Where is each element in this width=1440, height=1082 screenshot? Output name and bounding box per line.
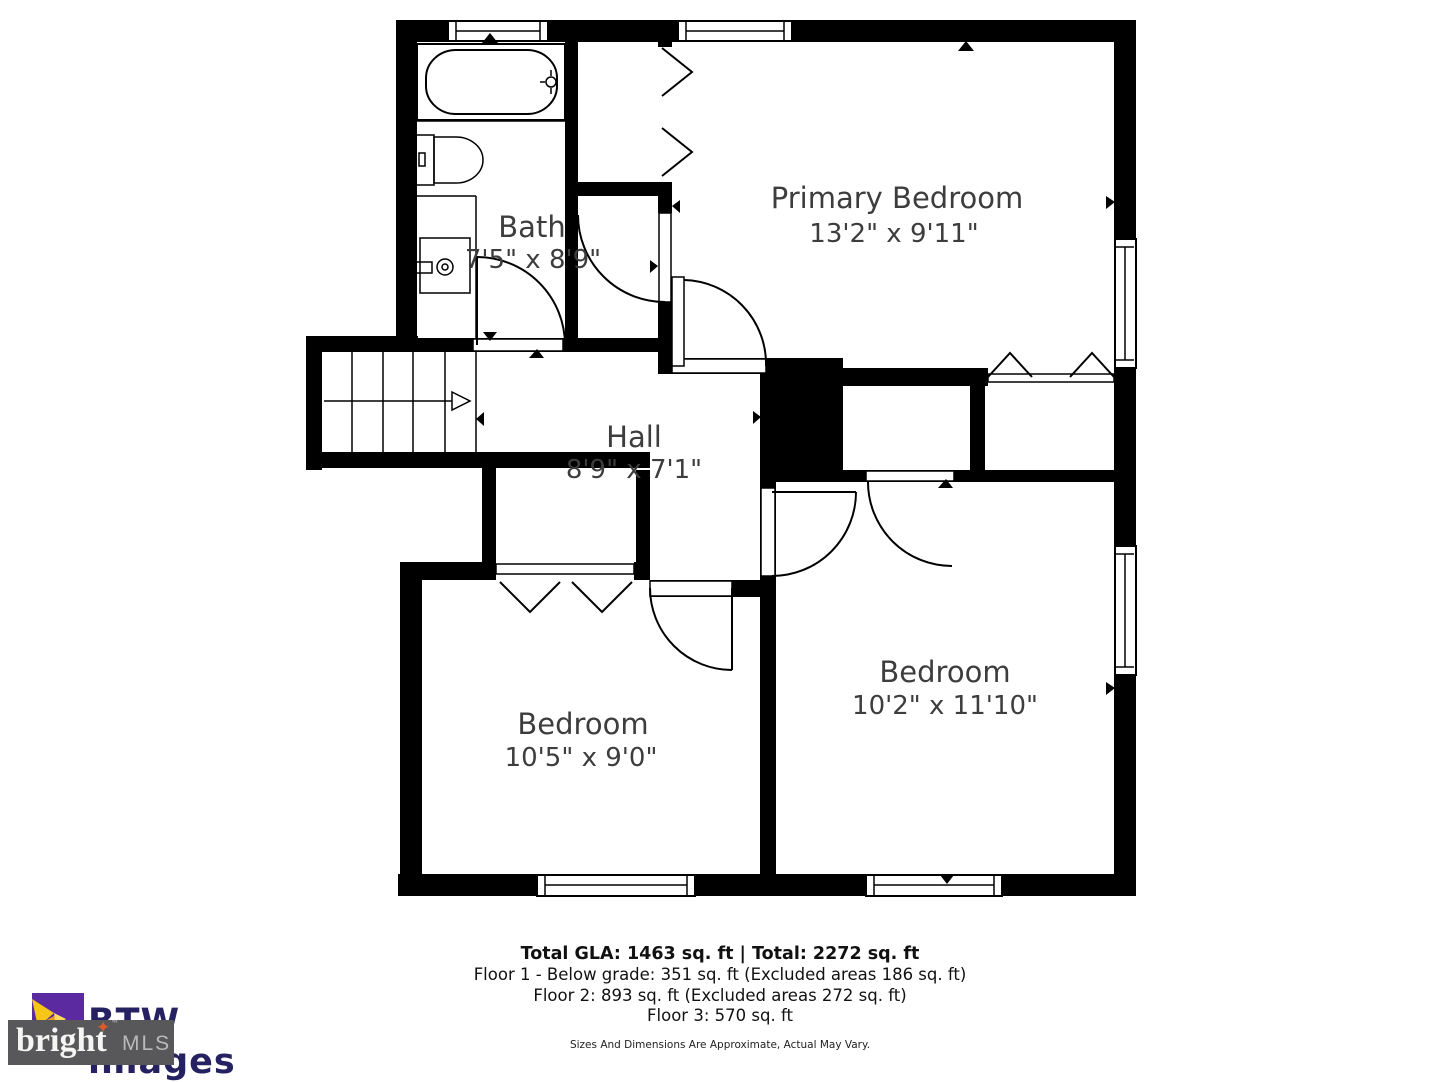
wall-stair-left — [306, 336, 322, 470]
bright-star-icon: ✦ — [96, 1018, 110, 1038]
stairs — [324, 352, 476, 452]
bedroom-right-label: Bedroom — [879, 655, 1010, 689]
window-primary-top — [678, 21, 792, 41]
bifold-doors — [496, 48, 1114, 612]
marker-left-midcloset — [672, 200, 680, 213]
bedroomright-hall-door — [761, 488, 856, 576]
wall-closets-top — [843, 368, 988, 386]
bright-mls-logo: bright ✦ ™ MLS — [8, 1020, 174, 1065]
primary-bedroom-dims: 13'2" x 9'11" — [809, 219, 978, 249]
floor-plan-page: { "rooms": { "primary": {"name": "Primar… — [0, 0, 1440, 1080]
bedroomleft-door — [650, 581, 732, 670]
primary-closet2-bifold — [988, 353, 1114, 382]
wall-bath-left — [396, 20, 417, 352]
bedroom-left-dims: 10'5" x 9'0" — [505, 743, 658, 773]
wall-closet-left — [482, 452, 496, 580]
wall-bath-right — [565, 42, 578, 338]
total-gla-line: Total GLA: 1463 sq. ft | Total: 2272 sq.… — [0, 944, 1440, 965]
primary-closet-bifold — [662, 48, 692, 176]
toilet-icon — [414, 135, 483, 185]
marker-left-stairs — [476, 412, 484, 426]
wall-closets-partition — [970, 386, 985, 470]
hall-label: Hall — [606, 420, 662, 454]
window-bedroomleft-bottom — [537, 875, 695, 896]
bath-dims: 7'5" x 8'9" — [465, 245, 601, 275]
wall-mid-piece-low — [658, 302, 672, 358]
bedroom-left-label: Bedroom — [517, 707, 648, 741]
primary-bedroom-label: Primary Bedroom — [771, 181, 1023, 215]
window-bedroomright-bottom — [866, 875, 1002, 896]
wall-right — [1114, 20, 1136, 896]
hall-dims: 8'9" x 7'1" — [566, 455, 702, 485]
marker-right-block — [753, 411, 761, 424]
bath-label: Bath — [498, 210, 565, 244]
wall-midcloset-bottom — [578, 182, 672, 196]
bright-tm: ™ — [111, 1019, 119, 1028]
walls — [306, 20, 1136, 896]
window-bath-top — [448, 21, 548, 41]
wall-mid-piece — [658, 196, 672, 213]
bright-mls-suffix: MLS — [122, 1032, 171, 1056]
wall-bedroomleft-top-b — [634, 562, 650, 580]
floor-plan-drawing: Primary Bedroom 13'2" x 9'11" Bath 7'5" … — [0, 0, 1440, 1080]
logo-area: BTW images bright ✦ ™ MLS — [0, 985, 340, 1080]
wall-closets-bottom — [776, 470, 1136, 482]
wall-bottom — [398, 874, 1136, 896]
window-primary-right — [1115, 239, 1136, 368]
bright-wordmark: bright — [16, 1022, 107, 1060]
floor1-line: Floor 1 - Below grade: 351 sq. ft (Exclu… — [0, 965, 1440, 986]
bedroom-right-dims: 10'2" x 11'10" — [852, 691, 1038, 721]
window-bedroomright-right — [1115, 546, 1136, 675]
solid-block-chase — [760, 358, 843, 470]
bedroomleft-closet-bifold — [496, 564, 634, 612]
stairs-direction-arrow — [324, 392, 470, 410]
wall-bedroomleft-left — [400, 562, 422, 882]
bathtub-icon — [417, 44, 565, 121]
bath-fixtures — [404, 44, 565, 338]
doors — [473, 213, 954, 670]
marker-right-wall-2 — [1106, 682, 1115, 695]
marker-right-wall-1 — [1106, 196, 1115, 209]
marker-right-midcloset — [650, 260, 658, 273]
wall-mid-stub-top — [658, 20, 672, 47]
primary-bedroom-door — [672, 277, 766, 373]
marker-up-primary — [958, 41, 974, 51]
